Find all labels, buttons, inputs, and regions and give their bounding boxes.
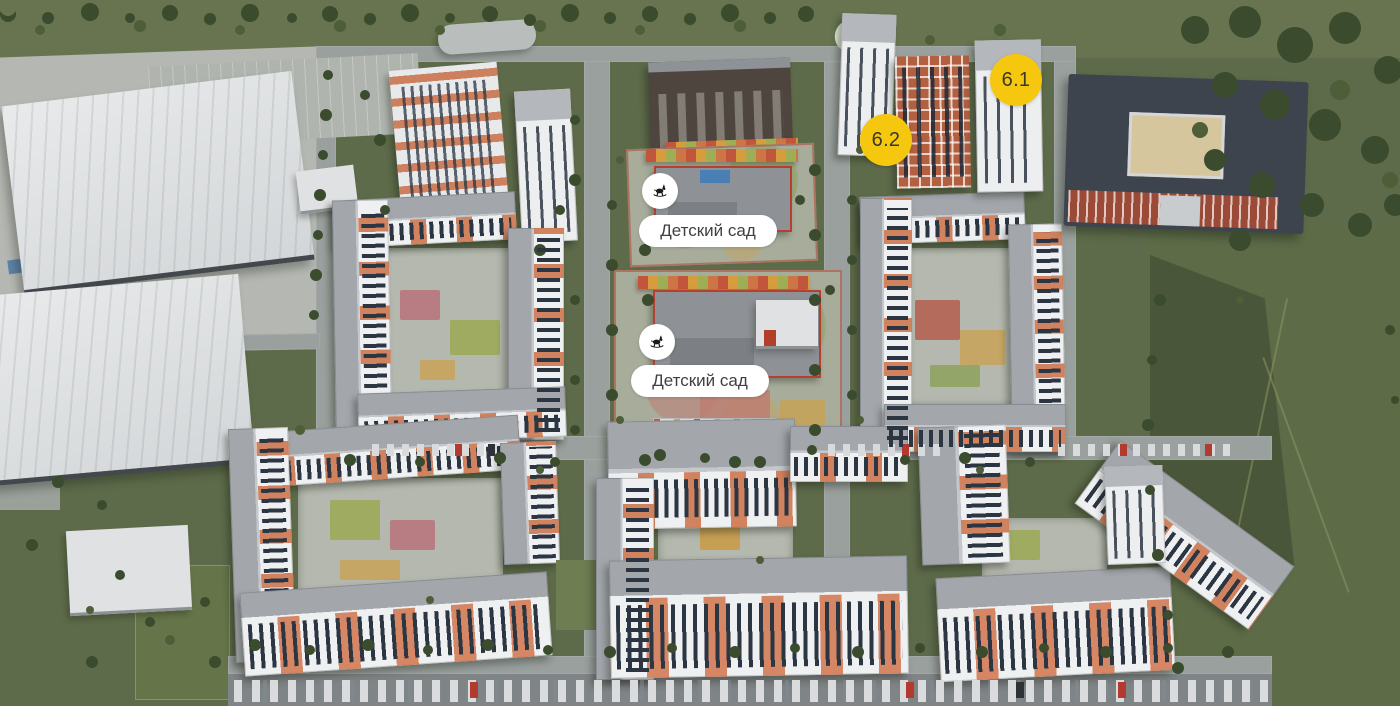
rocking-horse-icon: [650, 181, 670, 201]
playground-patch: [420, 360, 455, 380]
kindergarten-label-text: Детский сад: [652, 371, 748, 391]
kindergarten-label-text: Детский сад: [660, 221, 756, 241]
playground-patch: [330, 500, 380, 540]
red-car: [455, 444, 462, 456]
red-car: [1205, 444, 1212, 456]
kindergarten-label-1[interactable]: Детский сад: [639, 215, 777, 247]
dark-car: [488, 444, 495, 456]
render-scene: [0, 0, 1400, 706]
courtyard: [378, 248, 523, 403]
red-car: [470, 682, 478, 698]
brick-tower: [895, 55, 971, 188]
building-badge-label: 6.2: [872, 129, 901, 152]
masterplan-view: 6.1 6.2 Детский сад: [0, 0, 1400, 706]
small-industrial-building: [66, 525, 192, 616]
dark-car: [1016, 682, 1024, 698]
school-courtyard: [1127, 112, 1225, 179]
blue-roof-detail: [700, 170, 730, 183]
building-badge-6-1[interactable]: 6.1: [990, 54, 1042, 106]
playground-patch: [340, 560, 400, 580]
red-car: [906, 682, 914, 698]
playground-patch: [960, 330, 1005, 365]
warehouse-building: [0, 274, 255, 486]
trees-layer-light: [0, 0, 16, 16]
residential-building: [609, 555, 909, 678]
red-cube-detail: [764, 330, 776, 346]
building-badge-6-2[interactable]: 6.2: [860, 114, 912, 166]
building-badge-label: 6.1: [1002, 69, 1031, 92]
residential-building: [500, 441, 560, 565]
school-building: [1063, 74, 1308, 234]
residential-building: [935, 566, 1175, 682]
playground-canopies: [646, 149, 798, 162]
courtyard: [898, 248, 1023, 406]
playground-patch: [450, 320, 500, 355]
kindergarten-marker-1[interactable]: [642, 173, 678, 209]
playground-patch: [915, 300, 960, 340]
playground-patch: [390, 520, 435, 550]
playground-patch: [400, 290, 440, 320]
playground-canopies: [638, 276, 810, 289]
parked-cars-row: [234, 680, 1268, 702]
red-car: [1118, 682, 1126, 698]
kindergarten-label-2[interactable]: Детский сад: [631, 365, 769, 397]
red-car: [1120, 444, 1127, 456]
white-tower: [514, 89, 578, 244]
warehouse-building: [2, 71, 315, 295]
school-entrance: [1160, 195, 1201, 226]
white-tower: [1104, 465, 1165, 565]
parked-cars-row: [372, 444, 497, 456]
playground-patch: [700, 525, 740, 550]
kindergarten-marker-2[interactable]: [639, 324, 675, 360]
playground-patch: [930, 365, 980, 387]
rocking-horse-icon: [647, 332, 667, 352]
